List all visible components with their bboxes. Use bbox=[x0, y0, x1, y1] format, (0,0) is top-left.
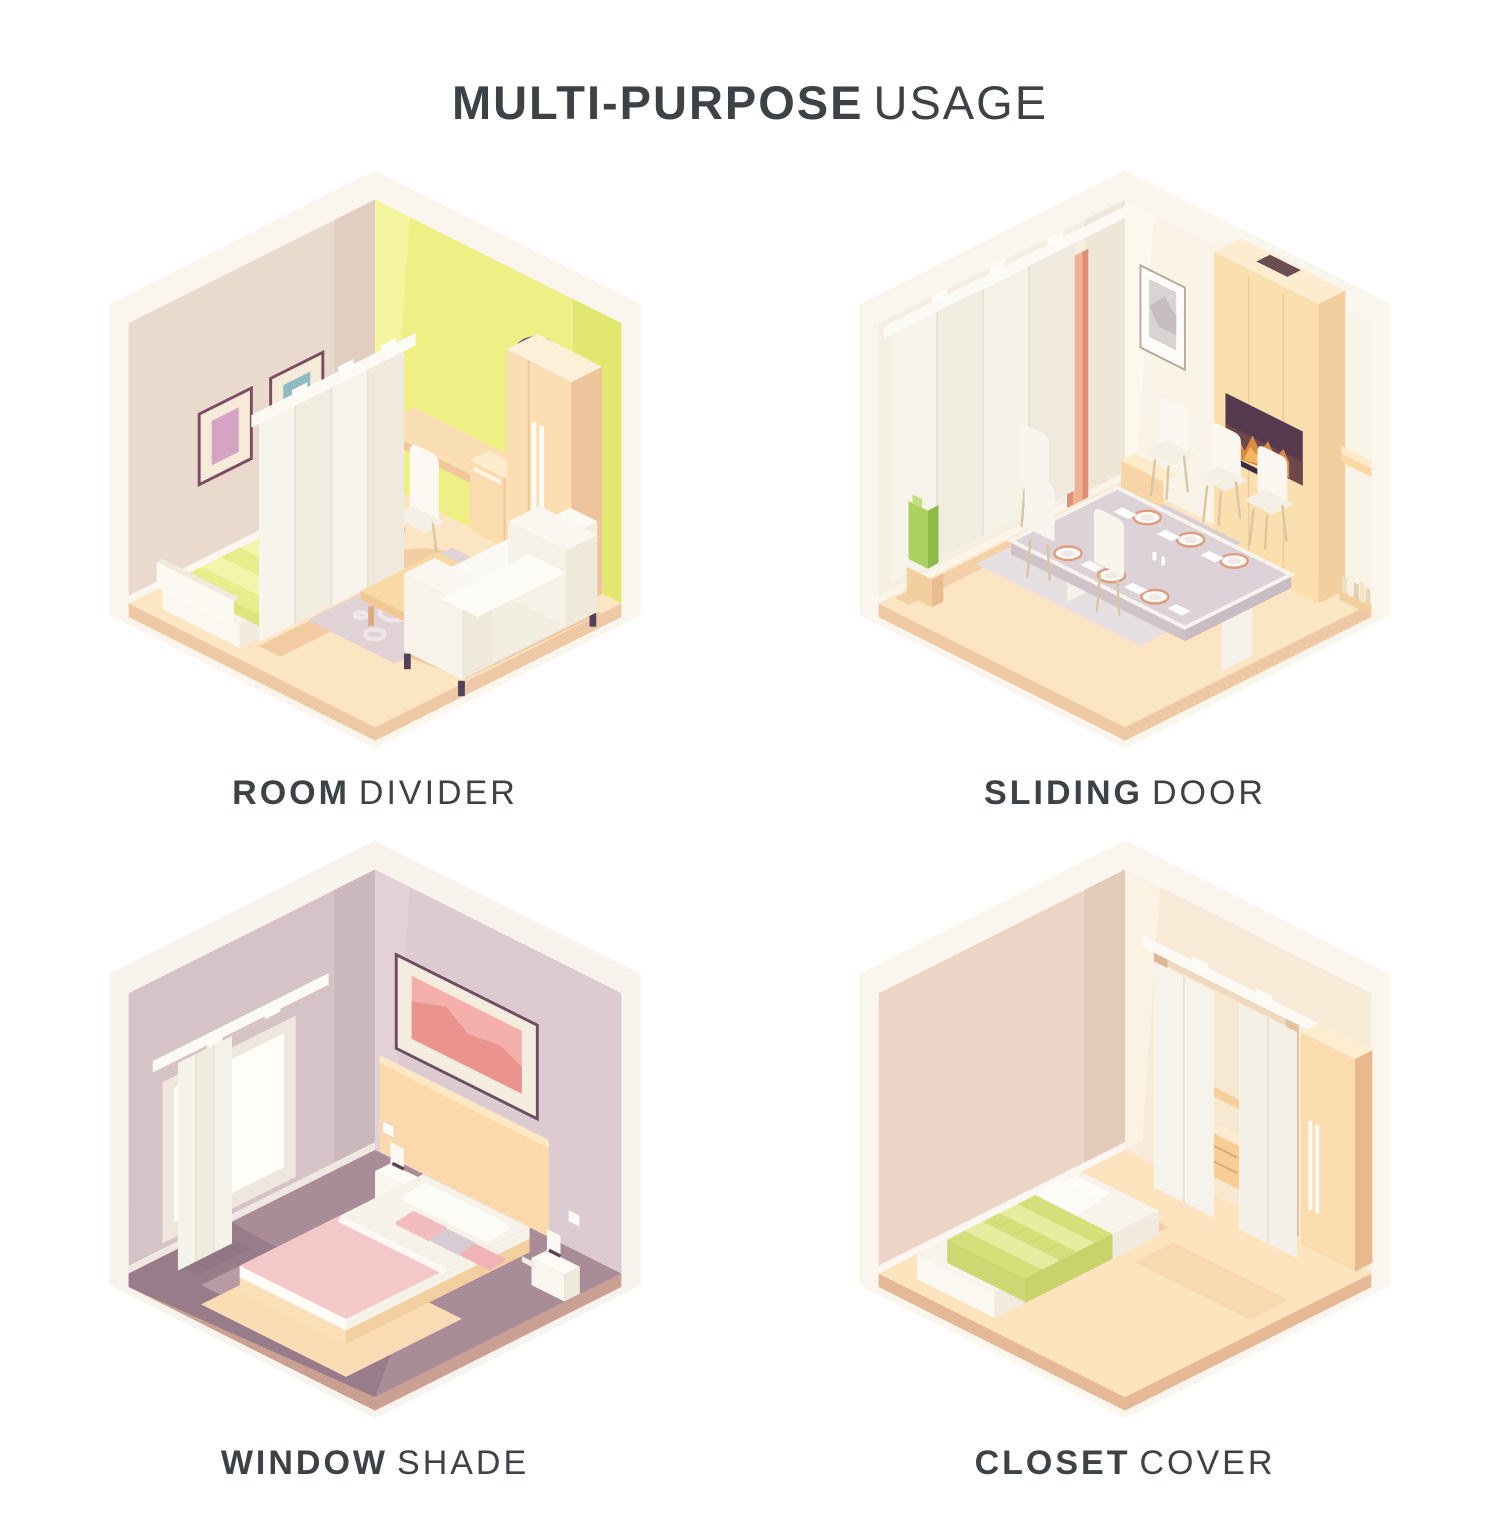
caption-bold: SLIDING bbox=[984, 774, 1143, 812]
caption-closet-cover: CLOSETCOVER bbox=[975, 1444, 1276, 1483]
plant bbox=[907, 494, 944, 607]
poster: MULTI-PURPOSEUSAGE bbox=[0, 31, 1500, 1531]
wardrobe-handle bbox=[1315, 1124, 1319, 1213]
wardrobe bbox=[1301, 1023, 1372, 1271]
caption-bold: ROOM bbox=[232, 774, 350, 812]
caption-bold: WINDOW bbox=[221, 1444, 388, 1482]
pepper-shaker bbox=[1161, 556, 1166, 566]
wardrobe-handle bbox=[1309, 1120, 1313, 1209]
tile-closet-cover: CLOSETCOVER bbox=[750, 831, 1500, 1483]
tile-grid: ROOMDIVIDER bbox=[0, 161, 1500, 1483]
closet-cover-illustration bbox=[835, 831, 1415, 1430]
room-divider-illustration bbox=[85, 161, 665, 760]
page-title-light: USAGE bbox=[874, 76, 1049, 129]
caption-sliding-door: SLIDINGDOOR bbox=[984, 774, 1266, 813]
tile-room-divider: ROOMDIVIDER bbox=[0, 161, 750, 813]
tile-sliding-door: SLIDINGDOOR bbox=[750, 161, 1500, 813]
caption-light: COVER bbox=[1139, 1444, 1275, 1482]
caption-light: DIVIDER bbox=[359, 774, 518, 812]
caption-light: DOOR bbox=[1152, 774, 1266, 812]
caption-room-divider: ROOMDIVIDER bbox=[232, 774, 518, 813]
sliding-door-illustration bbox=[835, 161, 1415, 760]
caption-bold: CLOSET bbox=[975, 1444, 1131, 1482]
tile-window-shade: WINDOWSHADE bbox=[0, 831, 750, 1483]
salt-shaker bbox=[1152, 551, 1157, 561]
window-shade-illustration bbox=[85, 831, 665, 1430]
page-title: MULTI-PURPOSEUSAGE bbox=[0, 31, 1500, 129]
caption-light: SHADE bbox=[397, 1444, 529, 1482]
caption-window-shade: WINDOWSHADE bbox=[221, 1444, 529, 1483]
page-title-bold: MULTI-PURPOSE bbox=[452, 76, 864, 129]
